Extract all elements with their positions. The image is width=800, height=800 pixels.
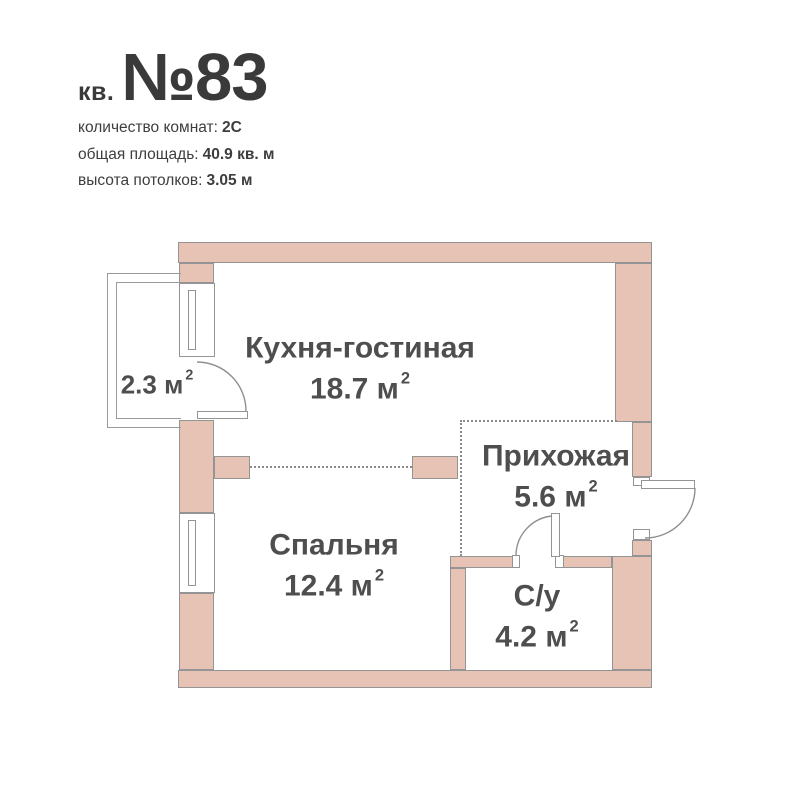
detail-area: общая площадь:40.9 кв. м bbox=[78, 146, 274, 164]
wall-bathroom-top-left bbox=[450, 556, 513, 568]
room-label-kitchen-living: Кухня-гостиная 18.7 м2 bbox=[245, 332, 475, 407]
bathroom-door-arc bbox=[516, 516, 552, 555]
dotted-line-kitchen-bedroom bbox=[250, 466, 412, 468]
wall-left-top-corner bbox=[179, 263, 214, 283]
room-area-balcony: 2.3 м2 bbox=[121, 366, 194, 399]
room-area-bedroom: 12.4 м2 bbox=[269, 563, 399, 604]
detail-rooms-label: количество комнат: bbox=[78, 119, 218, 136]
apartment-prefix: кв. bbox=[78, 78, 114, 107]
wall-stub-left bbox=[214, 456, 250, 479]
room-name-kitchen-living: Кухня-гостиная bbox=[245, 332, 475, 366]
wall-bathroom-top-right bbox=[563, 556, 612, 568]
balcony-window-glazing bbox=[188, 290, 196, 350]
detail-rooms-value: 2С bbox=[222, 119, 242, 136]
entrance-door-arc bbox=[645, 488, 695, 538]
balcony-window bbox=[179, 283, 215, 357]
room-label-hallway: Прихожая 5.6 м2 bbox=[482, 440, 630, 515]
entrance-door-frame-bottom bbox=[633, 529, 650, 540]
wall-right-hallway bbox=[632, 422, 652, 477]
bedroom-window-glazing bbox=[188, 520, 196, 586]
room-label-bedroom: Спальня 12.4 м2 bbox=[269, 529, 399, 604]
room-label-balcony: 2.3 м2 bbox=[121, 366, 194, 399]
bathroom-door-frame-left bbox=[512, 555, 520, 568]
detail-area-value: 40.9 кв. м bbox=[203, 146, 275, 163]
detail-ceiling-label: высота потолков: bbox=[78, 172, 202, 189]
bathroom-door-leaf bbox=[551, 513, 560, 557]
detail-ceiling-value: 3.05 м bbox=[206, 172, 252, 189]
wall-right-upper bbox=[615, 263, 652, 422]
room-name-hallway: Прихожая bbox=[482, 440, 630, 474]
dotted-line-hallway-left bbox=[460, 420, 462, 556]
wall-left-middle bbox=[179, 420, 214, 513]
balcony-door-leaf bbox=[197, 411, 248, 419]
apartment-plan-page: кв. №83 количество комнат:2С общая площа… bbox=[0, 0, 800, 800]
bedroom-window bbox=[179, 513, 215, 593]
entrance-door-leaf bbox=[641, 480, 695, 489]
room-name-bedroom: Спальня bbox=[269, 529, 399, 563]
balcony-door-arc bbox=[197, 362, 246, 411]
room-area-hallway: 5.6 м2 bbox=[482, 474, 630, 515]
wall-bottom bbox=[178, 670, 652, 688]
dotted-line-hallway-top bbox=[460, 420, 617, 422]
wall-right-bathroom bbox=[612, 556, 652, 670]
room-area-bathroom: 4.2 м2 bbox=[495, 614, 578, 655]
wall-top bbox=[178, 242, 652, 263]
wall-left-bottom bbox=[179, 593, 214, 670]
room-label-bathroom: С/у 4.2 м2 bbox=[495, 580, 578, 655]
wall-stub-middle bbox=[412, 456, 458, 479]
apartment-title: кв. №83 bbox=[78, 44, 268, 111]
detail-rooms: количество комнат:2С bbox=[78, 119, 274, 137]
wall-bathroom-left bbox=[450, 568, 466, 670]
detail-ceiling: высота потолков:3.05 м bbox=[78, 172, 274, 190]
detail-area-label: общая площадь: bbox=[78, 146, 199, 163]
room-name-bathroom: С/у bbox=[495, 580, 578, 614]
wall-right-below-door bbox=[632, 540, 652, 556]
room-area-kitchen-living: 18.7 м2 bbox=[245, 366, 475, 407]
apartment-details: количество комнат:2С общая площадь:40.9 … bbox=[78, 119, 274, 199]
apartment-number: №83 bbox=[121, 44, 267, 111]
